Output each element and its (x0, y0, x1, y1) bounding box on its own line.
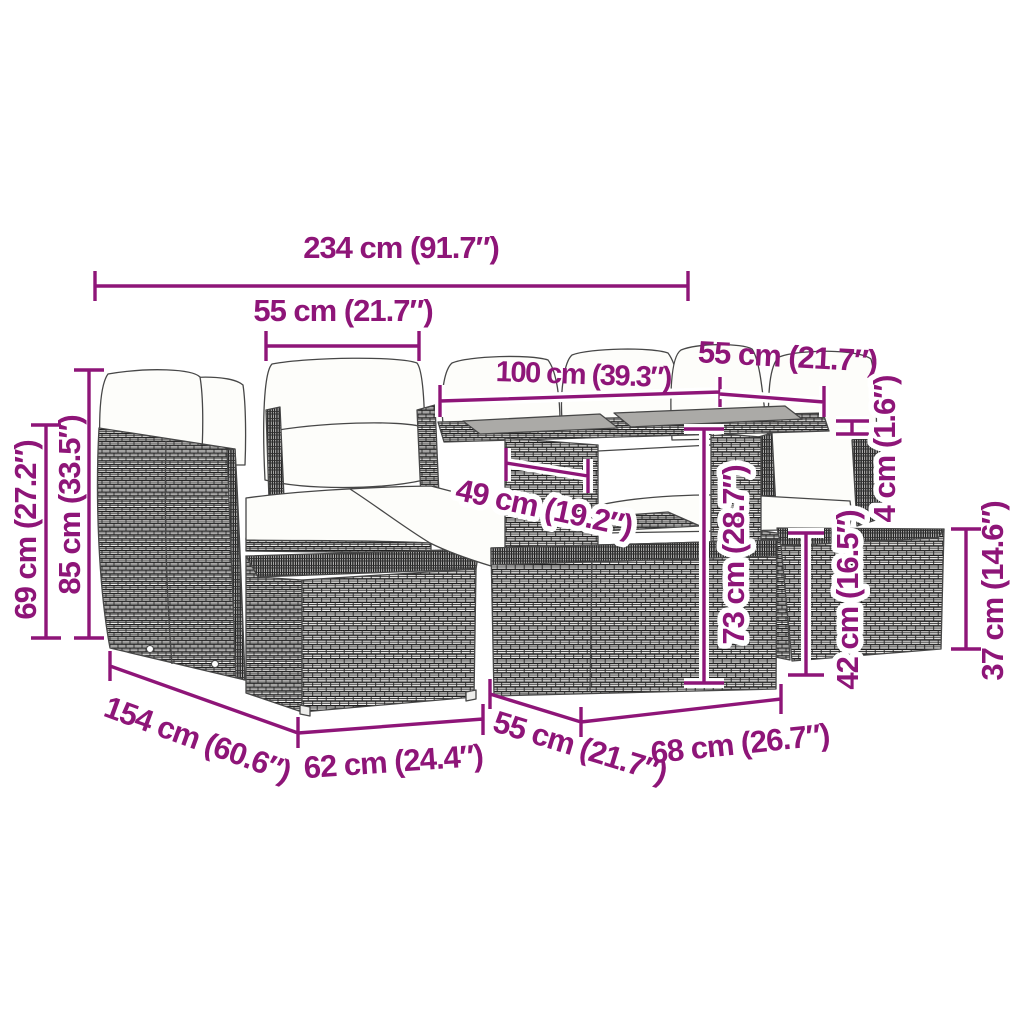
svg-text:100 cm (39.3″): 100 cm (39.3″) (495, 356, 672, 394)
svg-text:55 cm (21.7″): 55 cm (21.7″) (253, 293, 432, 328)
svg-text:73 cm (28.7″): 73 cm (28.7″) (716, 465, 751, 644)
svg-text:69 cm (27.2″): 69 cm (27.2″) (8, 440, 43, 619)
svg-text:234 cm (91.7″): 234 cm (91.7″) (303, 230, 499, 265)
svg-text:37 cm (14.6″): 37 cm (14.6″) (975, 501, 1010, 680)
svg-text:85 cm (33.5″): 85 cm (33.5″) (52, 415, 87, 594)
svg-text:42 cm (16.5″): 42 cm (16.5″) (830, 510, 865, 689)
svg-text:4 cm (1.6″): 4 cm (1.6″) (867, 376, 902, 523)
